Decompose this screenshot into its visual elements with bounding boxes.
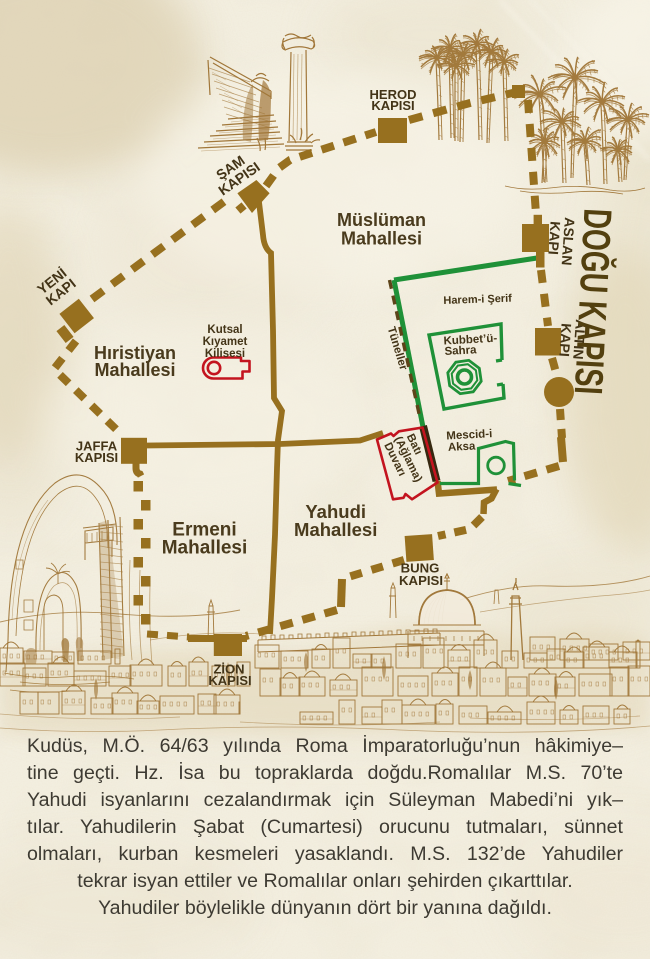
svg-text:Mahallesi: Mahallesi bbox=[162, 538, 248, 559]
svg-text:KAPI: KAPI bbox=[545, 221, 563, 255]
svg-text:Mahallesi: Mahallesi bbox=[94, 360, 175, 380]
svg-text:KAPISI: KAPISI bbox=[371, 98, 414, 113]
svg-text:Kilisesi: Kilisesi bbox=[205, 348, 245, 360]
svg-text:Müslüman: Müslüman bbox=[337, 210, 426, 230]
svg-text:KAPISI: KAPISI bbox=[399, 573, 443, 588]
svg-text:KAPISI: KAPISI bbox=[208, 673, 251, 688]
svg-text:KAPISI: KAPISI bbox=[75, 450, 118, 465]
svg-text:Aksa: Aksa bbox=[448, 440, 477, 453]
svg-text:Kıyamet: Kıyamet bbox=[203, 336, 248, 348]
svg-text:Sahra: Sahra bbox=[444, 344, 477, 358]
svg-text:Kutsal: Kutsal bbox=[207, 324, 242, 336]
svg-text:Harem-i Şerif: Harem-i Şerif bbox=[443, 293, 512, 307]
svg-text:Mahallesi: Mahallesi bbox=[294, 519, 377, 540]
svg-text:Mahallesi: Mahallesi bbox=[341, 229, 422, 249]
